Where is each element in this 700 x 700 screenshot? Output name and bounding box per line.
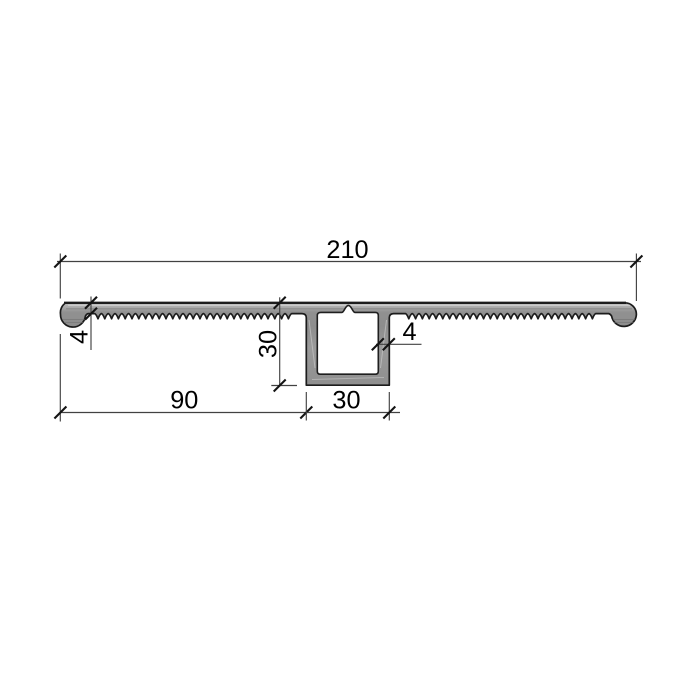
svg-text:4: 4 bbox=[66, 330, 94, 344]
svg-text:210: 210 bbox=[326, 236, 368, 264]
svg-text:90: 90 bbox=[170, 387, 198, 415]
svg-text:4: 4 bbox=[402, 318, 416, 346]
svg-text:30: 30 bbox=[254, 330, 282, 358]
svg-text:30: 30 bbox=[332, 387, 360, 415]
